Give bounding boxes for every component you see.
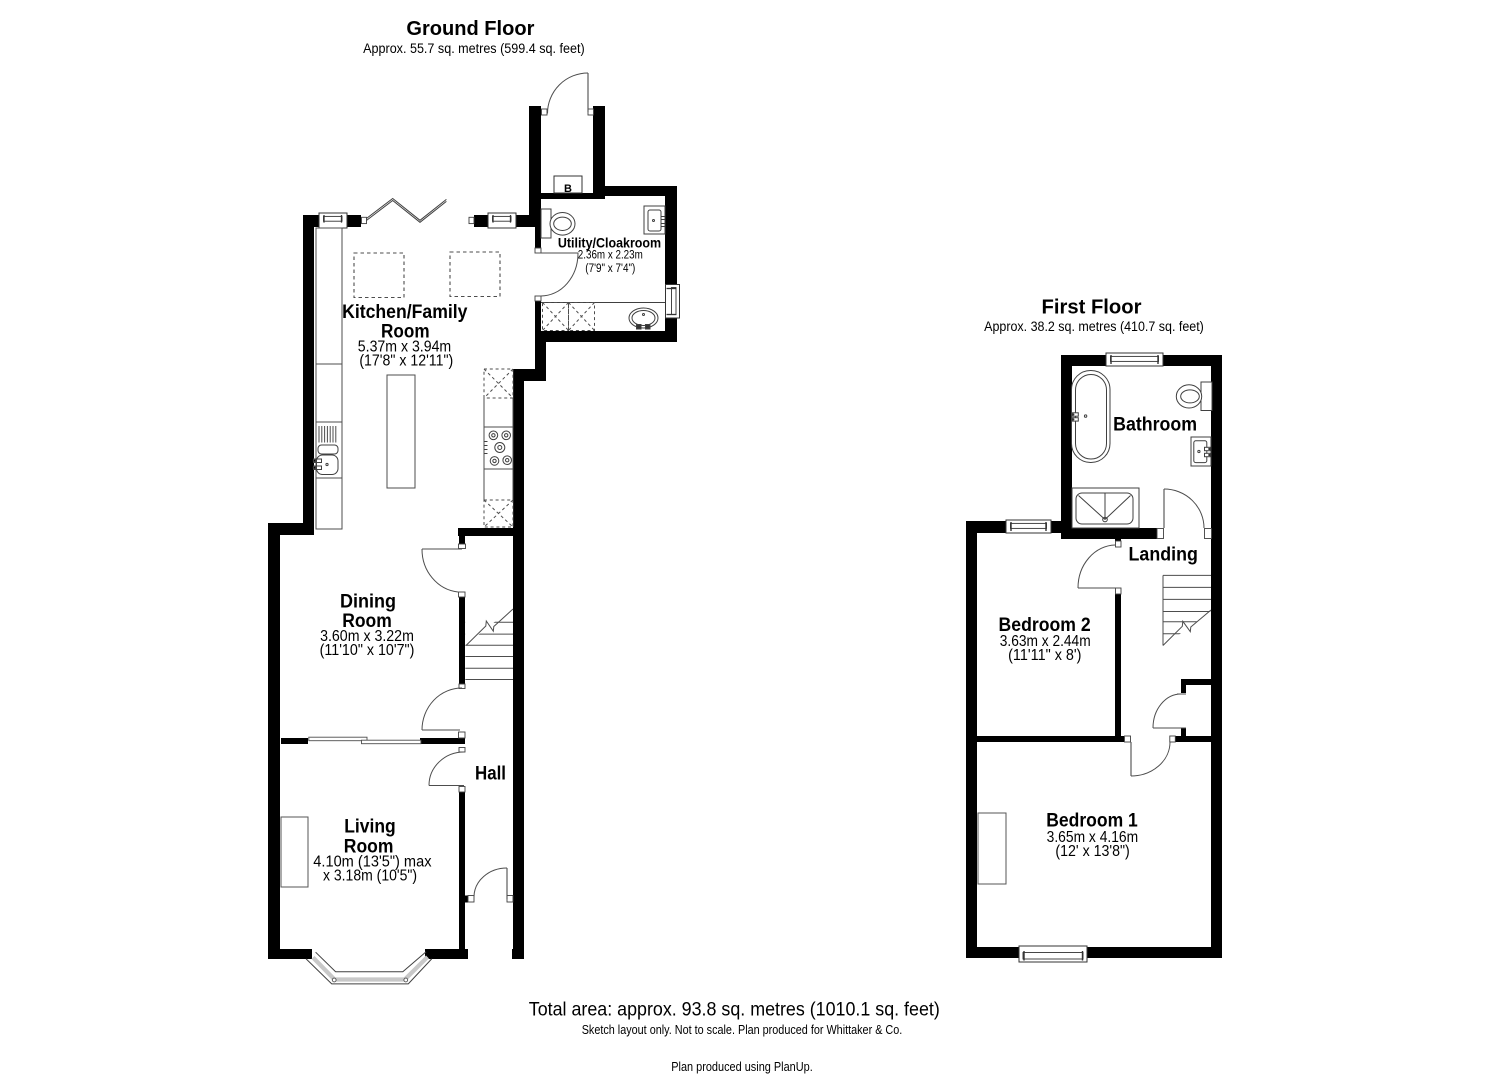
svg-text:(7'9" x 7'4"): (7'9" x 7'4") (585, 263, 635, 275)
svg-text:Approx. 55.7 sq. metres (599.4: Approx. 55.7 sq. metres (599.4 sq. feet) (363, 41, 585, 57)
svg-text:First Floor: First Floor (1042, 296, 1142, 319)
svg-text:Living: Living (344, 816, 396, 838)
svg-text:(11'11" x 8'): (11'11" x 8') (1008, 647, 1081, 664)
svg-text:Landing: Landing (1129, 543, 1198, 565)
svg-text:(11'10" x 10'7"): (11'10" x 10'7") (320, 642, 415, 659)
svg-text:Hall: Hall (475, 763, 506, 785)
svg-text:x 3.18m (10'5"): x 3.18m (10'5") (323, 867, 417, 884)
svg-text:2.36m x 2.23m: 2.36m x 2.23m (578, 250, 643, 262)
svg-text:Sketch layout only. Not to sca: Sketch layout only. Not to scale. Plan p… (582, 1022, 903, 1037)
svg-text:Utility/Cloakroom: Utility/Cloakroom (558, 235, 661, 251)
svg-text:Total area: approx. 93.8 sq. m: Total area: approx. 93.8 sq. metres (101… (529, 999, 940, 1021)
svg-text:(17'8" x 12'11"): (17'8" x 12'11") (359, 353, 453, 370)
svg-text:Plan produced using PlanUp.: Plan produced using PlanUp. (671, 1059, 813, 1074)
svg-text:(12' x 13'8"): (12' x 13'8") (1055, 843, 1129, 860)
svg-text:Bathroom: Bathroom (1113, 414, 1197, 436)
svg-text:Ground Floor: Ground Floor (406, 17, 534, 40)
svg-text:B: B (564, 183, 572, 195)
svg-text:Approx. 38.2 sq. metres (410.7: Approx. 38.2 sq. metres (410.7 sq. feet) (984, 319, 1204, 335)
